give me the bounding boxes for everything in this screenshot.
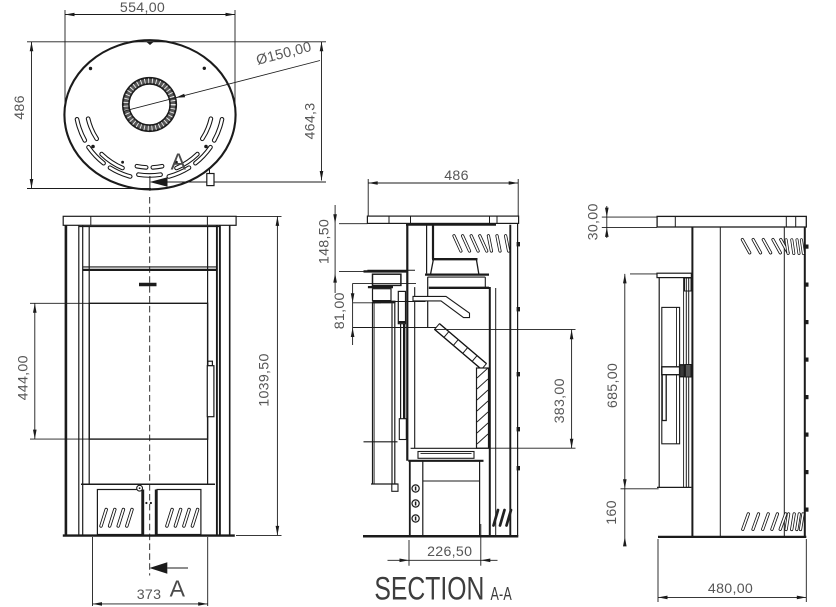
svg-text:486: 486 [444,168,469,184]
svg-text:81,00: 81,00 [332,292,348,329]
svg-text:444,00: 444,00 [16,355,32,400]
svg-text:486: 486 [12,95,28,120]
svg-text:685,00: 685,00 [605,363,621,408]
svg-text:226,50: 226,50 [427,544,472,560]
svg-text:480,00: 480,00 [708,581,753,597]
svg-text:A-A: A-A [490,583,512,604]
svg-text:SECTION: SECTION [374,571,484,607]
svg-text:373: 373 [137,587,162,603]
svg-text:148,50: 148,50 [317,219,333,264]
svg-text:A: A [170,576,186,602]
svg-text:464,3: 464,3 [303,102,319,139]
svg-text:30,00: 30,00 [585,203,601,240]
svg-text:554,00: 554,00 [120,0,165,16]
svg-text:383,00: 383,00 [552,378,568,423]
svg-text:1039,50: 1039,50 [256,353,272,406]
svg-text:160: 160 [604,500,620,525]
svg-text:A: A [171,149,187,175]
